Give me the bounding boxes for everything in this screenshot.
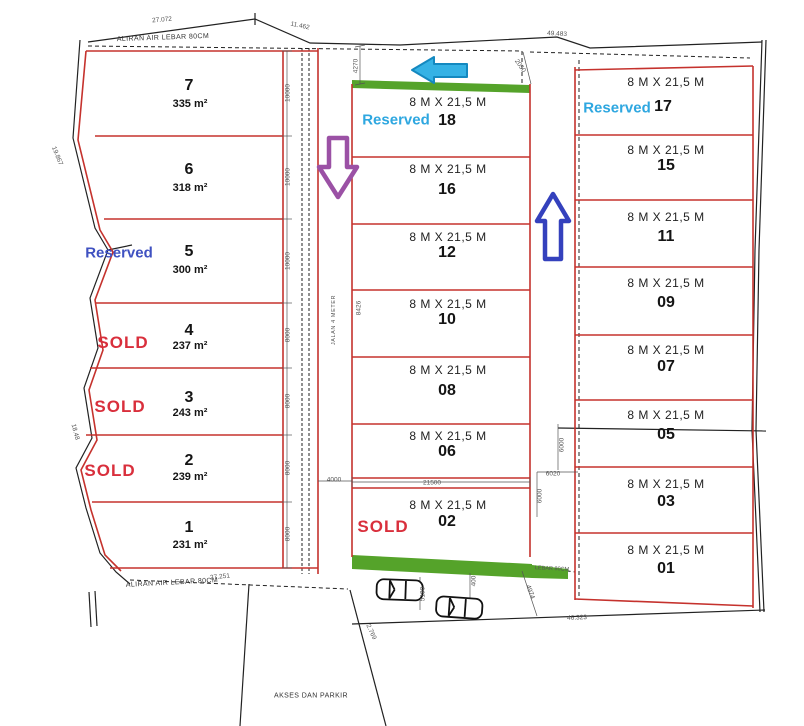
dim-lot2: 8000 — [285, 461, 292, 475]
plot-7-area: 335 m² — [173, 98, 208, 110]
plot-17-number: 17 — [654, 98, 672, 116]
dim-park-depth: 5190 — [420, 587, 427, 601]
car-icon — [436, 596, 483, 619]
plot-09-size: 8 M X 21,5 M — [627, 276, 704, 290]
dim-lot3: 8000 — [285, 394, 292, 408]
plot-17-status: Reserved — [583, 100, 651, 117]
plot-15-number: 15 — [657, 157, 675, 175]
arrow-left-icon — [412, 57, 467, 83]
plot-18-status: Reserved — [362, 112, 430, 129]
plot-10-number: 10 — [438, 311, 456, 329]
plot-6-number: 6 — [185, 161, 194, 179]
plot-12-size: 8 M X 21,5 M — [409, 230, 486, 244]
plot-02-status: SOLD — [357, 517, 408, 537]
dim-road-width: 4000 — [327, 477, 341, 484]
plot-09-number: 09 — [657, 294, 675, 312]
plot-05-number: 05 — [657, 426, 675, 444]
dim-alley-top: 6000 — [559, 438, 566, 452]
plot-01-size: 8 M X 21,5 M — [627, 543, 704, 557]
plot-18-size: 8 M X 21,5 M — [409, 95, 486, 109]
plot-03-size: 8 M X 21,5 M — [627, 477, 704, 491]
dim-lot7: 10000 — [285, 84, 292, 102]
plot-4-status: SOLD — [97, 333, 148, 353]
plot-1-number: 1 — [185, 519, 194, 537]
plot-3-number: 3 — [185, 389, 194, 407]
plot-5-area: 300 m² — [173, 264, 208, 276]
plot-3-area: 243 m² — [173, 407, 208, 419]
dim-lot6: 10000 — [285, 168, 292, 186]
dim-road-length: 8426 — [356, 301, 363, 315]
site-plan: 7 335 m² 6 318 m² Reserved 5 300 m² SOLD… — [0, 0, 804, 726]
plot-1-area: 231 m² — [173, 539, 208, 551]
plot-6-area: 318 m² — [173, 182, 208, 194]
plot-2-area: 239 m² — [173, 471, 208, 483]
plot-4-area: 237 m² — [173, 340, 208, 352]
plot-02-size: 8 M X 21,5 M — [409, 498, 486, 512]
plot-06-number: 06 — [438, 443, 456, 461]
left-block-borders — [78, 48, 318, 574]
plot-10-size: 8 M X 21,5 M — [409, 297, 486, 311]
dim-bottom-right: 46.323 — [567, 614, 587, 622]
plot-02-number: 02 — [438, 513, 456, 531]
car-icon — [376, 579, 423, 601]
plot-05-size: 8 M X 21,5 M — [627, 408, 704, 422]
plot-4-number: 4 — [185, 322, 194, 340]
plot-2-number: 2 — [185, 452, 194, 470]
dim-park-a: 400 — [471, 576, 478, 587]
plot-07-number: 07 — [657, 358, 675, 376]
plot-16-number: 16 — [438, 181, 456, 199]
plot-01-number: 01 — [657, 560, 675, 578]
dim-alley-width: 6020 — [546, 471, 560, 478]
plot-16-size: 8 M X 21,5 M — [409, 162, 486, 176]
plot-5-number: 5 — [185, 243, 194, 261]
arrow-up-icon — [537, 194, 569, 259]
plot-08-number: 08 — [438, 382, 456, 400]
plot-7-number: 7 — [185, 77, 194, 95]
plot-12-number: 12 — [438, 244, 456, 262]
plot-17-size: 8 M X 21,5 M — [627, 75, 704, 89]
dim-top-right: 49.483 — [547, 30, 567, 38]
plot-2-status: SOLD — [84, 461, 135, 481]
plot-18-number: 18 — [438, 112, 456, 130]
dim-gap-top: 4270 — [353, 59, 360, 73]
road-label: JALAN 4 METER — [331, 295, 337, 345]
plot-07-size: 8 M X 21,5 M — [627, 343, 704, 357]
plot-5-status: Reserved — [85, 245, 153, 262]
dim-alley-bottom: 6000 — [537, 489, 544, 503]
dim-block-width: 21500 — [423, 480, 441, 487]
dimension-lines — [282, 45, 578, 616]
plot-15-size: 8 M X 21,5 M — [627, 143, 704, 157]
plot-11-size: 8 M X 21,5 M — [627, 210, 704, 224]
plot-3-status: SOLD — [94, 397, 145, 417]
access-label: AKSES DAN PARKIR — [274, 693, 348, 700]
dim-lot5: 10000 — [285, 252, 292, 270]
dim-lot1: 8000 — [285, 527, 292, 541]
plot-11-number: 11 — [658, 228, 675, 246]
plan-drawing — [0, 0, 804, 726]
dim-lot4: 8000 — [285, 328, 292, 342]
plot-06-size: 8 M X 21,5 M — [409, 429, 486, 443]
plot-08-size: 8 M X 21,5 M — [409, 363, 486, 377]
plot-03-number: 03 — [657, 493, 675, 511]
